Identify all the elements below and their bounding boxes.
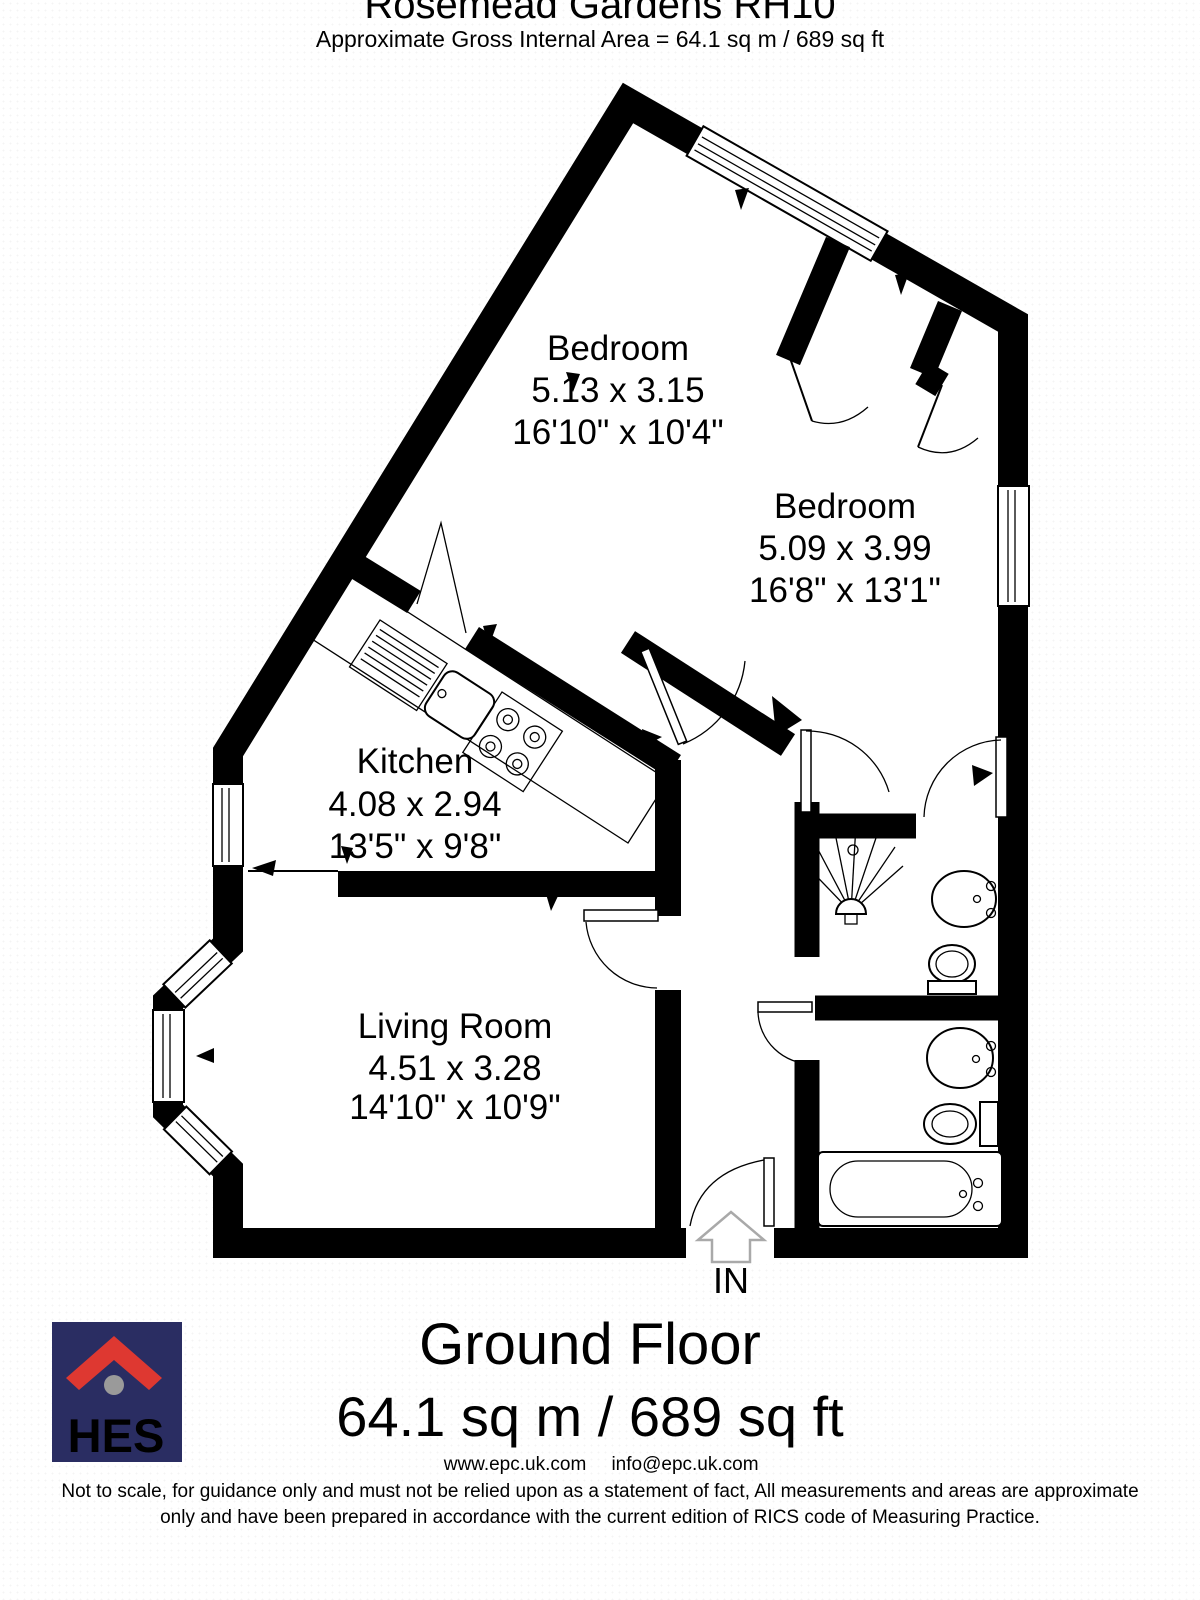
closet-wall-foot	[922, 373, 942, 385]
room-name: Living Room	[358, 1007, 553, 1046]
entrance-label: IN	[713, 1260, 749, 1301]
room-imperial: 14'10" x 10'9"	[349, 1088, 560, 1127]
sink-icon	[932, 871, 996, 927]
room-name: Kitchen	[357, 742, 474, 781]
footer-website: www.epc.uk.com	[443, 1454, 587, 1475]
room-name: Bedroom	[547, 329, 689, 368]
room-metric: 5.13 x 3.15	[531, 371, 704, 410]
room-metric: 4.51 x 3.28	[368, 1049, 541, 1088]
hes-logo: HES	[52, 1322, 182, 1462]
floorplan-canvas: Rosemead Gardens RH10 Approximate Gross …	[0, 0, 1200, 1600]
footer-disclaimer-2: only and have been prepared in accordanc…	[160, 1507, 1040, 1528]
room-imperial: 16'10" x 10'4"	[512, 413, 723, 452]
footer-disclaimer-1: Not to scale, for guidance only and must…	[61, 1481, 1138, 1502]
page-subtitle: Approximate Gross Internal Area = 64.1 s…	[316, 26, 885, 52]
footer: www.epc.uk.com info@epc.uk.com Not to sc…	[61, 1454, 1138, 1528]
floor-name: Ground Floor	[419, 1312, 761, 1377]
footer-email: info@epc.uk.com	[611, 1454, 758, 1475]
floor-area: 64.1 sq m / 689 sq ft	[336, 1385, 844, 1448]
bedroom2-window	[998, 486, 1029, 606]
floorplan-page: Rosemead Gardens RH10 Approximate Gross …	[0, 0, 1200, 1600]
kitchen-window	[213, 784, 243, 866]
floor-caption: Ground Floor 64.1 sq m / 689 sq ft	[336, 1312, 844, 1448]
room-imperial: 16'8" x 13'1"	[749, 571, 941, 610]
toilet-icon	[924, 1102, 998, 1146]
room-label-bedroom2: Bedroom 5.09 x 3.99 16'8" x 13'1"	[749, 487, 941, 610]
logo-dot-icon	[104, 1375, 124, 1395]
room-imperial: 13'5" x 9'8"	[329, 827, 502, 866]
bathtub-icon	[818, 1152, 1002, 1226]
room-name: Bedroom	[774, 487, 916, 526]
header: Rosemead Gardens RH10 Approximate Gross …	[316, 0, 885, 52]
page-title: Rosemead Gardens RH10	[364, 0, 835, 27]
outer-walls	[168, 103, 1013, 1264]
outer-wall-outline	[168, 103, 1013, 1243]
room-metric: 4.08 x 2.94	[328, 785, 501, 824]
room-metric: 5.09 x 3.99	[758, 529, 931, 568]
room-label-living-room: Living Room 4.51 x 3.28 14'10" x 10'9"	[349, 1007, 560, 1127]
logo-text: HES	[68, 1409, 165, 1462]
toilet-icon	[928, 945, 976, 994]
